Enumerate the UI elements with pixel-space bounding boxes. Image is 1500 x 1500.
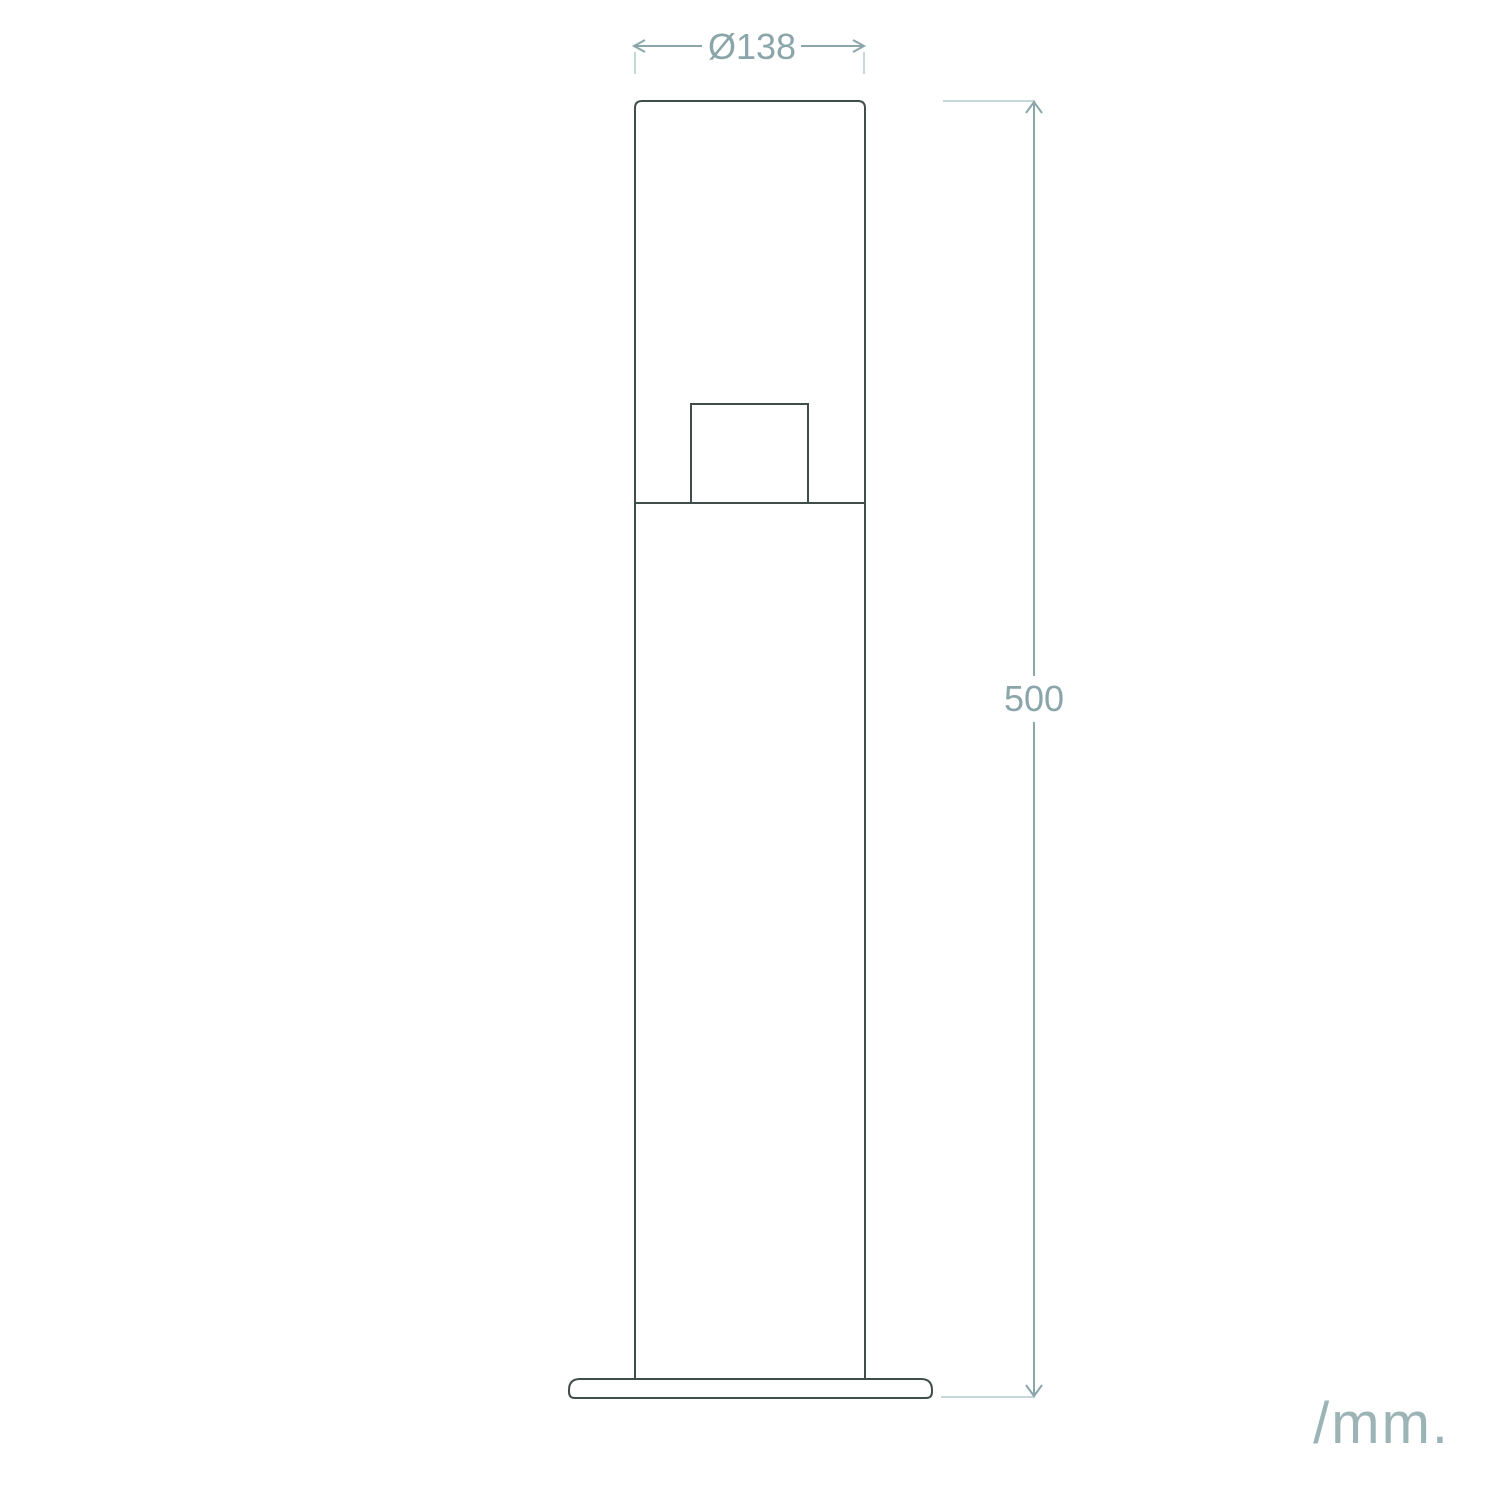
lamp-window-square <box>691 404 808 503</box>
technical-drawing: Ø138 500 /mm. <box>0 0 1500 1500</box>
base-plate <box>569 1379 932 1398</box>
units-label: /mm. <box>1313 1391 1450 1456</box>
height-dimension-label: 500 <box>1004 678 1064 719</box>
height-dimension-group <box>1026 102 1042 1396</box>
bollard-body-outline <box>635 101 865 1379</box>
drawing-canvas: Ø138 500 /mm. <box>0 0 1500 1500</box>
extension-lines-group <box>635 52 1035 1397</box>
bollard-outline-group <box>569 101 932 1398</box>
diameter-dimension-label: Ø138 <box>708 26 796 67</box>
